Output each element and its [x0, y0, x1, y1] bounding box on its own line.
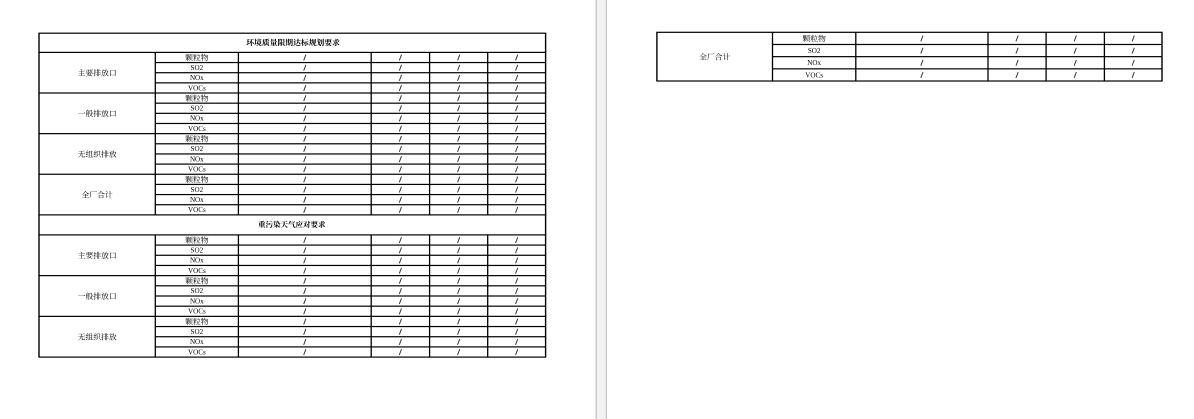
svg-text:VOCs: VOCs: [188, 206, 206, 214]
svg-text:SO2: SO2: [191, 287, 204, 295]
svg-text:NOx: NOx: [190, 257, 204, 265]
svg-text:VOCs: VOCs: [188, 166, 206, 174]
svg-text:SO2: SO2: [808, 47, 821, 55]
svg-text:VOCs: VOCs: [188, 308, 206, 316]
svg-text:SO2: SO2: [191, 328, 204, 336]
svg-text:SO2: SO2: [191, 64, 204, 72]
svg-text:NOx: NOx: [807, 59, 821, 67]
svg-text:NOx: NOx: [190, 115, 204, 123]
svg-text:NOx: NOx: [190, 338, 204, 346]
svg-text:VOCs: VOCs: [188, 125, 206, 133]
svg-text:VOCs: VOCs: [188, 84, 206, 92]
svg-text:SO2: SO2: [191, 145, 204, 153]
svg-text:SO2: SO2: [191, 247, 204, 255]
svg-text:VOCs: VOCs: [188, 348, 206, 356]
svg-text:NOx: NOx: [190, 74, 204, 82]
svg-text:NOx: NOx: [190, 196, 204, 204]
svg-text:NOx: NOx: [190, 297, 204, 305]
svg-text:VOCs: VOCs: [188, 267, 206, 275]
svg-text:NOx: NOx: [190, 155, 204, 163]
svg-text:SO2: SO2: [191, 105, 204, 113]
svg-text:VOCs: VOCs: [805, 71, 823, 79]
svg-text:SO2: SO2: [191, 186, 204, 194]
